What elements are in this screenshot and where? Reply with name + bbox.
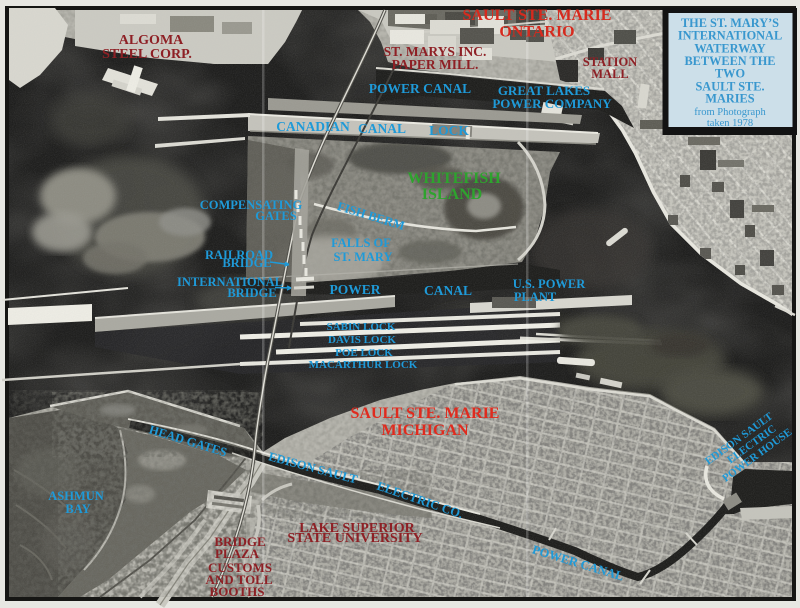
svg-text:ISLAND: ISLAND	[422, 186, 482, 203]
svg-text:taken 1978: taken 1978	[707, 118, 753, 129]
svg-text:POWER COMPANY: POWER COMPANY	[492, 96, 612, 111]
svg-text:POWER CANAL: POWER CANAL	[369, 81, 471, 96]
svg-text:ST. MARY: ST. MARY	[333, 250, 392, 264]
svg-text:PLAZA: PLAZA	[215, 546, 260, 561]
svg-text:SAULT STE. MARIE: SAULT STE. MARIE	[351, 405, 500, 422]
svg-text:ONTARIO: ONTARIO	[499, 24, 574, 41]
svg-text:CANAL: CANAL	[358, 121, 406, 136]
svg-text:MACARTHUR LOCK: MACARTHUR LOCK	[309, 359, 418, 371]
svg-text:POWER: POWER	[329, 282, 380, 297]
svg-text:GATES: GATES	[255, 209, 296, 223]
svg-text:FALLS OF: FALLS OF	[331, 236, 391, 250]
svg-text:BAY: BAY	[65, 502, 90, 516]
svg-text:BRIDGE: BRIDGE	[227, 286, 276, 300]
svg-text:PAPER MILL.: PAPER MILL.	[392, 57, 479, 72]
svg-text:ASHMUN: ASHMUN	[48, 489, 104, 503]
svg-text:DAVIS LOCK: DAVIS LOCK	[328, 334, 396, 346]
svg-text:BRIDGE: BRIDGE	[222, 256, 271, 270]
svg-text:WHITEFISH: WHITEFISH	[407, 170, 501, 187]
svg-text:BOOTHS: BOOTHS	[210, 584, 265, 599]
svg-text:STATE UNIVERSITY: STATE UNIVERSITY	[287, 531, 422, 546]
svg-text:SAULT STE. MARIE: SAULT STE. MARIE	[463, 7, 612, 24]
svg-text:MICHIGAN: MICHIGAN	[381, 422, 469, 439]
svg-text:STEEL CORP.: STEEL CORP.	[102, 47, 192, 62]
svg-text:POE LOCK: POE LOCK	[335, 347, 393, 359]
svg-text:ALGOMA: ALGOMA	[119, 33, 184, 48]
svg-text:CANAL: CANAL	[424, 283, 472, 298]
svg-text:CANADIAN: CANADIAN	[276, 119, 350, 134]
svg-text:MALL: MALL	[591, 67, 629, 81]
svg-text:from Photograph: from Photograph	[694, 107, 766, 118]
svg-text:SABIN LOCK: SABIN LOCK	[327, 321, 396, 333]
svg-text:PLANT: PLANT	[514, 290, 557, 304]
svg-text:LOCK: LOCK	[429, 123, 469, 138]
svg-text:MARIES: MARIES	[705, 92, 754, 106]
svg-text:U.S. POWER: U.S. POWER	[513, 277, 587, 291]
